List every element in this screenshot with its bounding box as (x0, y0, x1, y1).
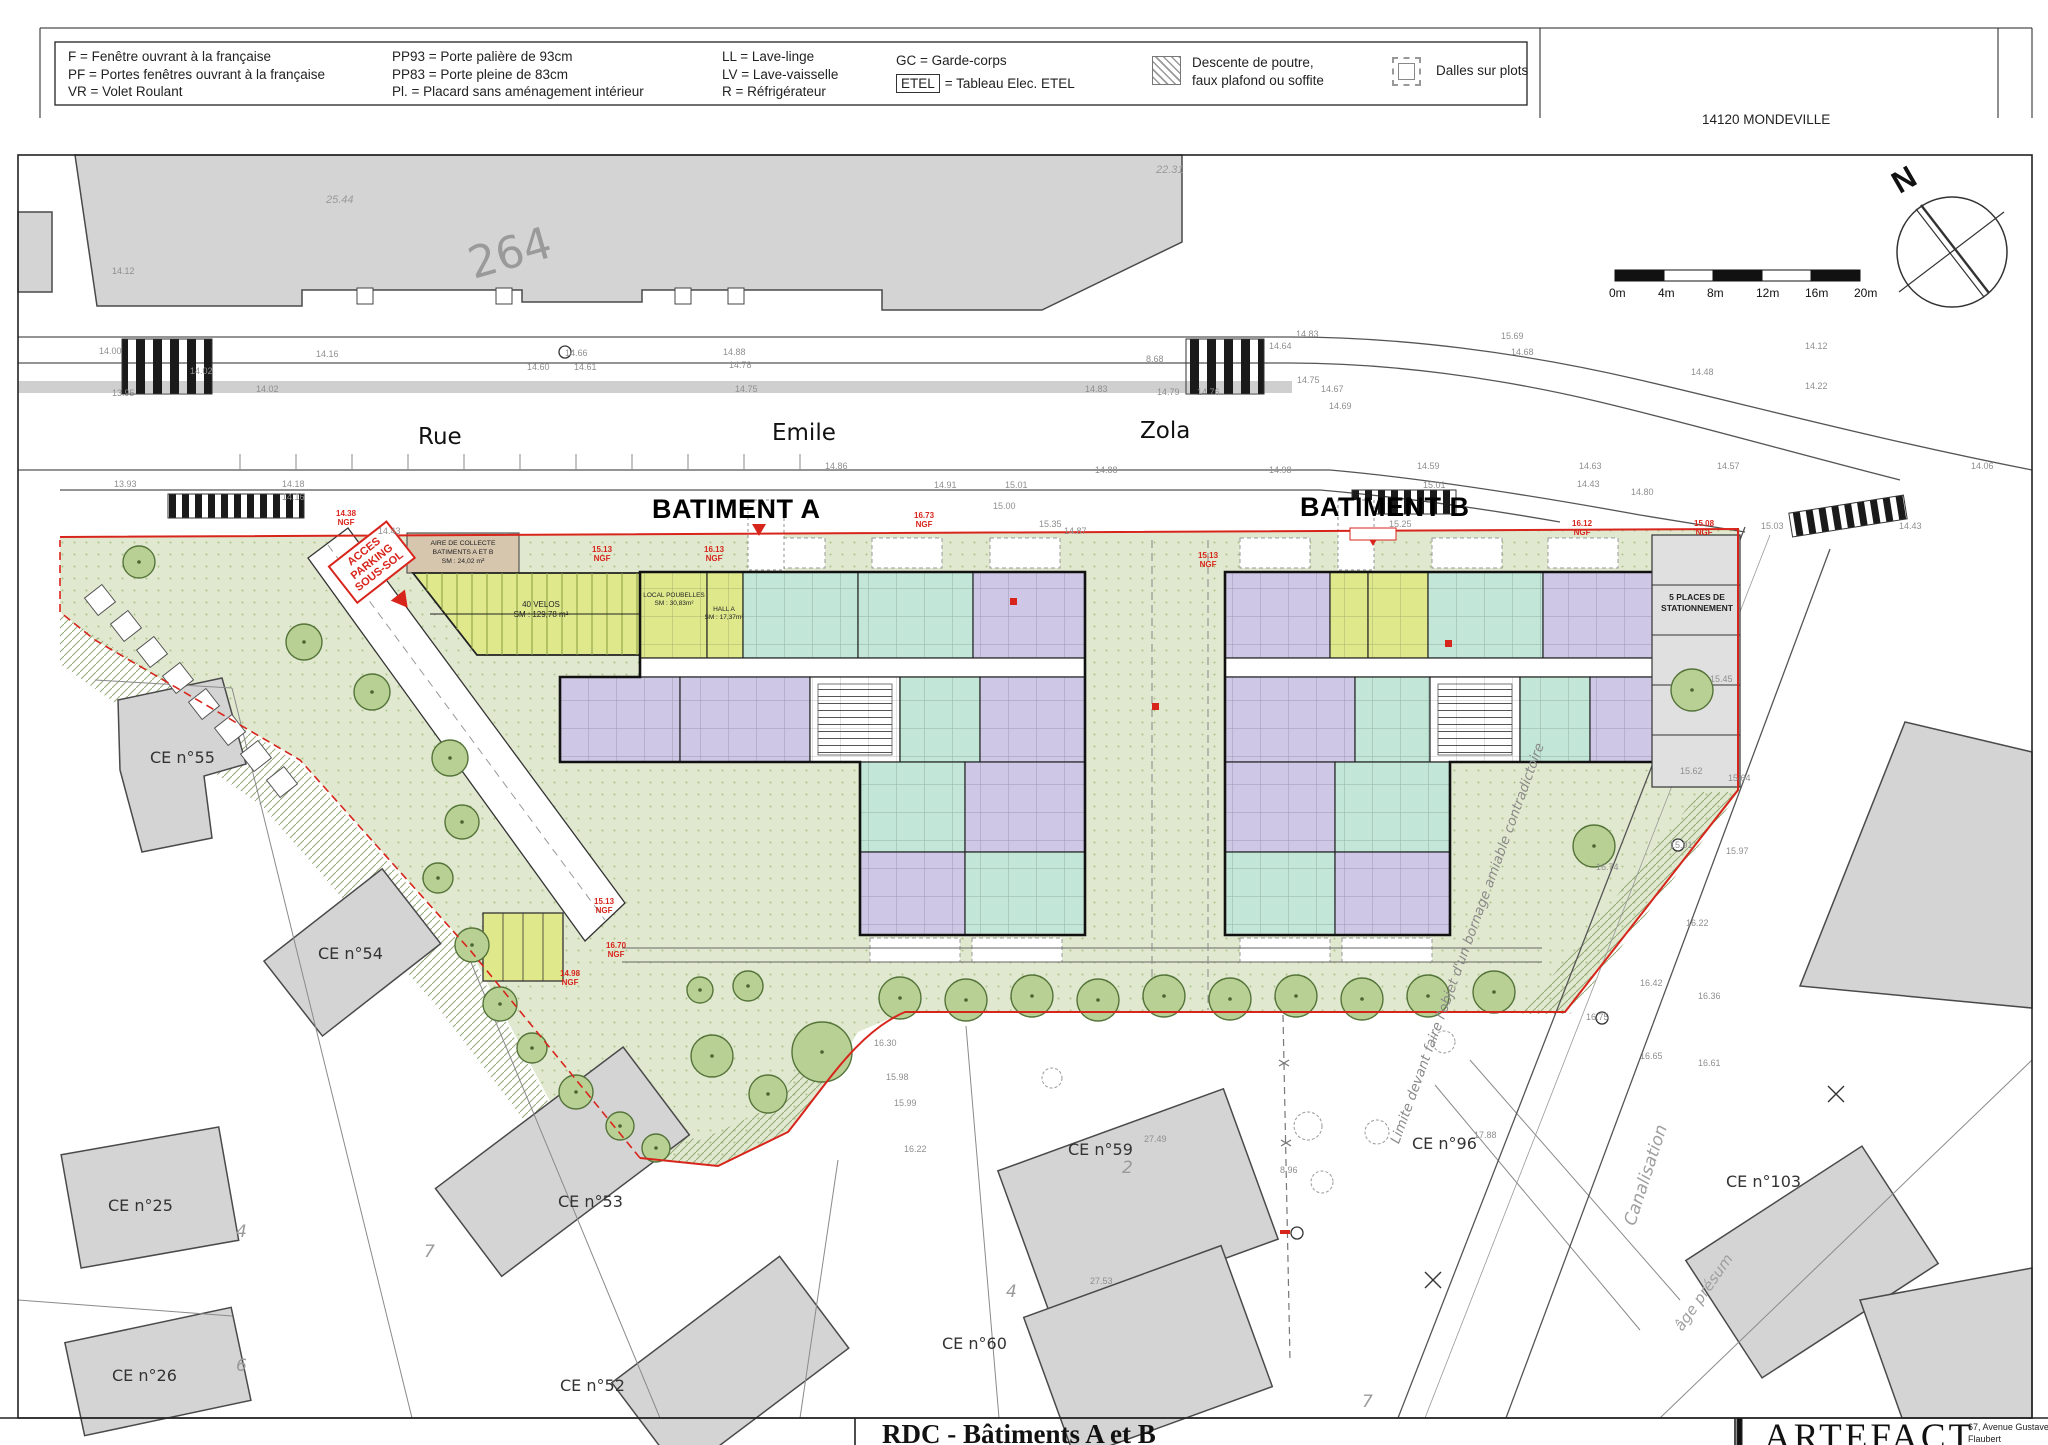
crosswalk (122, 339, 212, 394)
tree-center-dot (302, 640, 306, 644)
tree-center-dot (460, 820, 464, 824)
existing-building-north-band (75, 155, 1182, 310)
crosswalks (122, 339, 1907, 537)
tree-center-dot (1030, 994, 1034, 998)
tree-center-dot (574, 1090, 578, 1094)
parking-bay-ticks (240, 454, 800, 470)
tree-center-dot (1592, 844, 1596, 848)
tree-center-dot (618, 1124, 622, 1128)
tree-center-dot (710, 1054, 714, 1058)
tree-center-dot (1228, 997, 1232, 1001)
shrub-symbol (1365, 1120, 1389, 1144)
corridor (640, 658, 1085, 677)
shrub-symbol (1042, 1068, 1062, 1088)
building-ce26 (65, 1307, 251, 1435)
tree-center-dot (1690, 688, 1694, 692)
road-edges (18, 337, 2032, 532)
building-ce52 (612, 1256, 849, 1445)
shrub-symbol (1433, 1031, 1455, 1053)
fence-line (1279, 1015, 1291, 1360)
existing-building (18, 212, 52, 292)
north-arrow (1897, 197, 2007, 307)
tree-center-dot (1492, 990, 1496, 994)
tree-center-dot (654, 1146, 658, 1150)
tree-center-dot (137, 560, 141, 564)
shrub-symbol (1311, 1171, 1333, 1193)
tree-center-dot (530, 1046, 534, 1050)
tree-center-dot (1426, 994, 1430, 998)
site-plan-canvas (0, 0, 2048, 1445)
red-survey-tick (1280, 1230, 1290, 1234)
tree-center-dot (448, 756, 452, 760)
tree-center-dot (1294, 994, 1298, 998)
tree-center-dot (436, 876, 440, 880)
tree-center-dot (470, 943, 474, 947)
building-ce55 (118, 678, 246, 852)
tree-center-dot (898, 996, 902, 1000)
building-ce25 (61, 1127, 239, 1268)
tree-center-dot (498, 1002, 502, 1006)
parking-strip-5-places (1652, 535, 1740, 787)
waste-collection-area (407, 533, 519, 573)
shrub-symbol (1294, 1112, 1322, 1140)
building-east (1800, 722, 2032, 1008)
tree-center-dot (1162, 994, 1166, 998)
tree-center-dot (964, 998, 968, 1002)
tree-center-dot (370, 690, 374, 694)
tree-center-dot (766, 1092, 770, 1096)
crosswalk (168, 494, 304, 518)
tree-center-dot (820, 1050, 824, 1054)
red-level-box (1350, 528, 1396, 540)
drawing-sheet: F = Fenêtre ouvrant à la française PF = … (0, 0, 2048, 1445)
tree-center-dot (1360, 997, 1364, 1001)
tree-center-dot (698, 988, 702, 992)
scale-bar (1615, 270, 1860, 281)
crosswalk (1186, 339, 1264, 394)
tree-center-dot (1096, 998, 1100, 1002)
crosswalk (1789, 495, 1907, 537)
tree-center-dot (746, 984, 750, 988)
corridor (1225, 658, 1665, 677)
